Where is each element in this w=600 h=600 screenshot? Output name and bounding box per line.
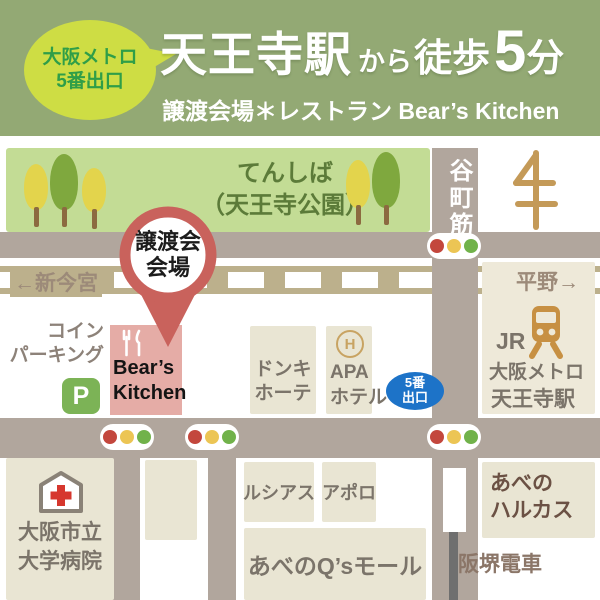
coin-parking-label: コイン パーキング: [0, 320, 104, 368]
station-line3: 天王寺駅: [491, 383, 575, 413]
apollo-label: アポロ: [322, 479, 376, 505]
exit5-line2: 出口: [402, 391, 428, 406]
traffic-light-icon: [427, 424, 481, 450]
street-label-shin-imamiya: ←新今宮: [10, 267, 102, 297]
page-title: 天王寺駅 から 徒歩 5 分: [160, 16, 596, 88]
street-label-hirano: 平野→: [516, 266, 579, 296]
unlabeled-building: [145, 460, 197, 540]
parking-icon: P: [62, 378, 100, 414]
road-horizontal-main: [0, 418, 600, 458]
bears-kitchen-label: Bear’s Kitchen: [113, 356, 186, 406]
tree-icon: [372, 152, 400, 225]
harukas-line2: ハルカス: [490, 497, 573, 524]
bears-kitchen-line2: Kitchen: [113, 381, 186, 406]
tree-icon: [82, 168, 106, 229]
apollo-building: アポロ: [322, 462, 376, 522]
street-label-hankai-tramway: 阪堺電車: [458, 548, 542, 578]
exit5-line1: 5番: [405, 376, 425, 391]
street-label-tanimachi: 谷町筋: [441, 158, 476, 239]
tram-track: [449, 532, 458, 600]
hospital-icon: [38, 470, 84, 514]
coin-parking-line1: コイン: [0, 320, 104, 344]
coin-parking-line2: パーキング: [0, 344, 104, 368]
train-icon: [528, 306, 564, 360]
apa-line2: ホテル: [330, 386, 387, 411]
traffic-light-icon: [185, 424, 239, 450]
lucias-building: ルシアス: [244, 462, 314, 522]
hotel-icon: H: [336, 330, 364, 358]
harukas-line1: あべの: [490, 470, 573, 497]
hospital-line1: 大阪市立: [8, 518, 112, 547]
tree-icon: [346, 160, 370, 225]
venue-pin-line2: 会場: [124, 255, 212, 281]
title-from: から: [358, 40, 412, 79]
apa-hotel-label: APA ホテル: [330, 361, 387, 410]
tree-icon: [24, 164, 48, 227]
hospital-label: 大阪市立 大学病院: [8, 518, 112, 577]
exit-badge-line1: 大阪メトロ: [42, 46, 137, 70]
donki-label: ドンキ ホーテ: [250, 358, 316, 406]
donki-line1: ドンキ: [250, 358, 316, 382]
venue-pin-label: 譲渡会 会場: [124, 229, 212, 281]
station-line1: JR: [496, 328, 525, 355]
speech-bubble-icon: 大阪メトロ 5番出口: [24, 20, 156, 120]
exit5-badge: 5番 出口: [386, 372, 444, 410]
apa-line1: APA: [330, 361, 387, 386]
station-line2: 大阪メトロ: [489, 357, 584, 384]
exit-badge-line2: 5番出口: [56, 70, 124, 94]
qs-mall-building: あべのQ’sモール: [244, 528, 426, 600]
road-horizontal-north: [0, 232, 600, 258]
road-vertical-west: [112, 458, 140, 600]
traffic-light-icon: [427, 233, 481, 259]
tram-stop-icon: [443, 468, 466, 532]
hospital-line2: 大学病院: [8, 547, 112, 576]
subtitle-venue: 譲渡会場＊レストラン Bear’s Kitchen: [162, 92, 559, 126]
lucias-label: ルシアス: [243, 479, 315, 505]
qs-mall-label: あべのQ’sモール: [248, 547, 422, 581]
title-station: 天王寺駅: [160, 16, 352, 85]
donki-line2: ホーテ: [250, 382, 316, 406]
title-minutes: 5: [494, 18, 526, 85]
pagoda-icon: [510, 148, 560, 232]
bears-kitchen-line1: Bear’s: [113, 356, 186, 381]
venue-pin-line1: 譲渡会: [124, 229, 212, 255]
road-vertical-center: [208, 458, 236, 600]
traffic-light-icon: [100, 424, 154, 450]
tree-icon: [50, 154, 78, 227]
harukas-label: あべの ハルカス: [490, 470, 573, 525]
title-unit: 分: [526, 27, 564, 82]
title-walk: 徒歩: [414, 27, 490, 82]
